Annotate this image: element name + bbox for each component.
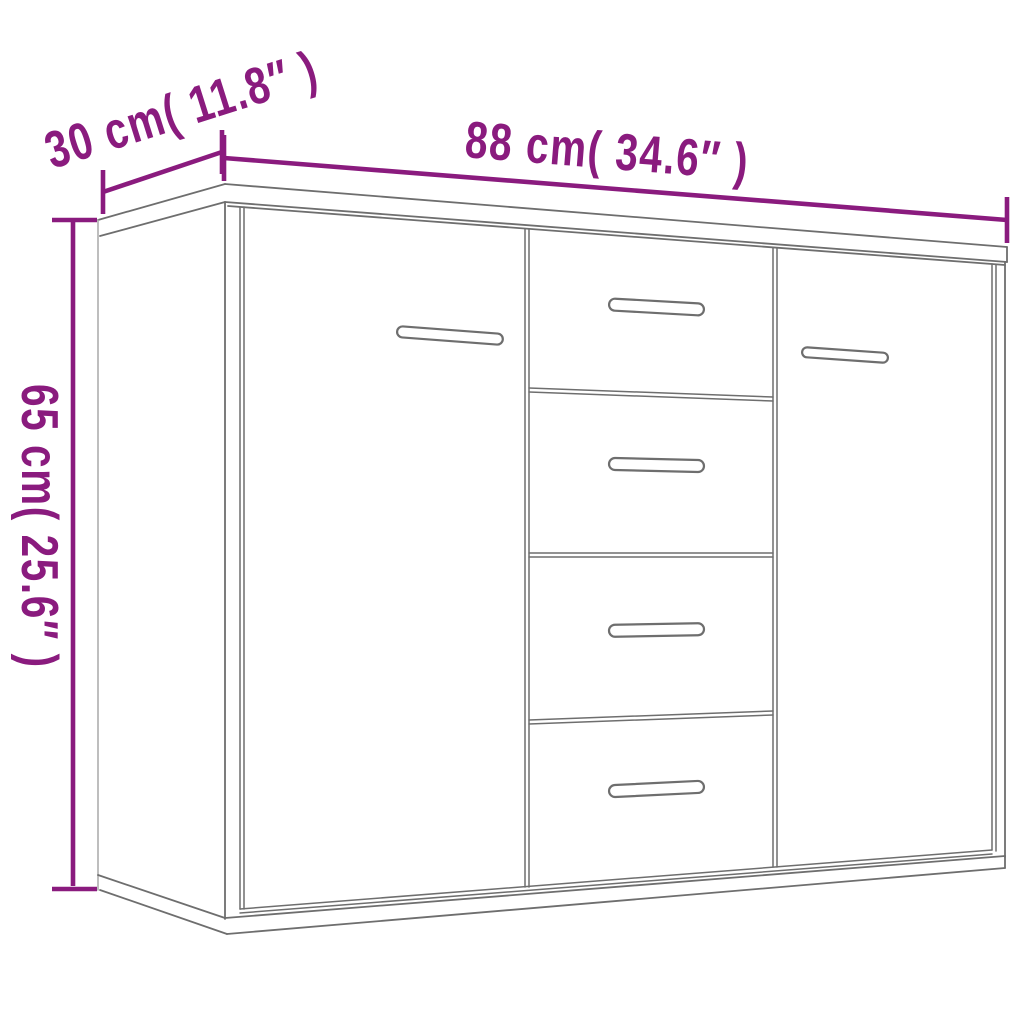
drawer-gap-3-line-2	[529, 715, 773, 724]
cabinet-drawing	[98, 184, 1007, 934]
drawer-1-handle	[609, 298, 705, 315]
right-door	[802, 264, 996, 851]
depth-dimension-label: 30 cm( 11.8″ )	[38, 39, 325, 179]
drawer-gap-1-line-2	[529, 392, 773, 401]
left-door	[240, 207, 503, 909]
left-door-handle	[397, 326, 504, 345]
product-dimension-image: 88 cm( 34.6″ ) 30 cm( 11.8″ ) 65 cm( 25.…	[0, 0, 1024, 1024]
drawer-column	[525, 229, 777, 887]
dimension-width: 88 cm( 34.6″ )	[224, 110, 1007, 243]
drawer-gap-1-line-1	[529, 388, 773, 397]
drawer-gap-3-line-1	[529, 711, 773, 720]
doors-bottom-gap-line-2	[240, 854, 992, 913]
top-panel	[98, 184, 1007, 262]
front-bottom-edge	[225, 856, 1005, 918]
height-dimension-label: 65 cm( 25.6″ )	[11, 384, 69, 669]
drawer-2-handle	[609, 458, 704, 472]
drawer-4-handle	[609, 781, 704, 798]
top-panel-left-bottom-edge	[100, 202, 225, 236]
right-door-handle	[802, 347, 888, 363]
front-frame	[225, 206, 1005, 934]
left-side-panel	[98, 202, 227, 934]
dimension-height: 65 cm( 25.6″ )	[11, 220, 97, 889]
drawer-3-handle	[609, 623, 704, 637]
dimension-diagram-svg: 88 cm( 34.6″ ) 30 cm( 11.8″ ) 65 cm( 25.…	[0, 0, 1024, 1024]
